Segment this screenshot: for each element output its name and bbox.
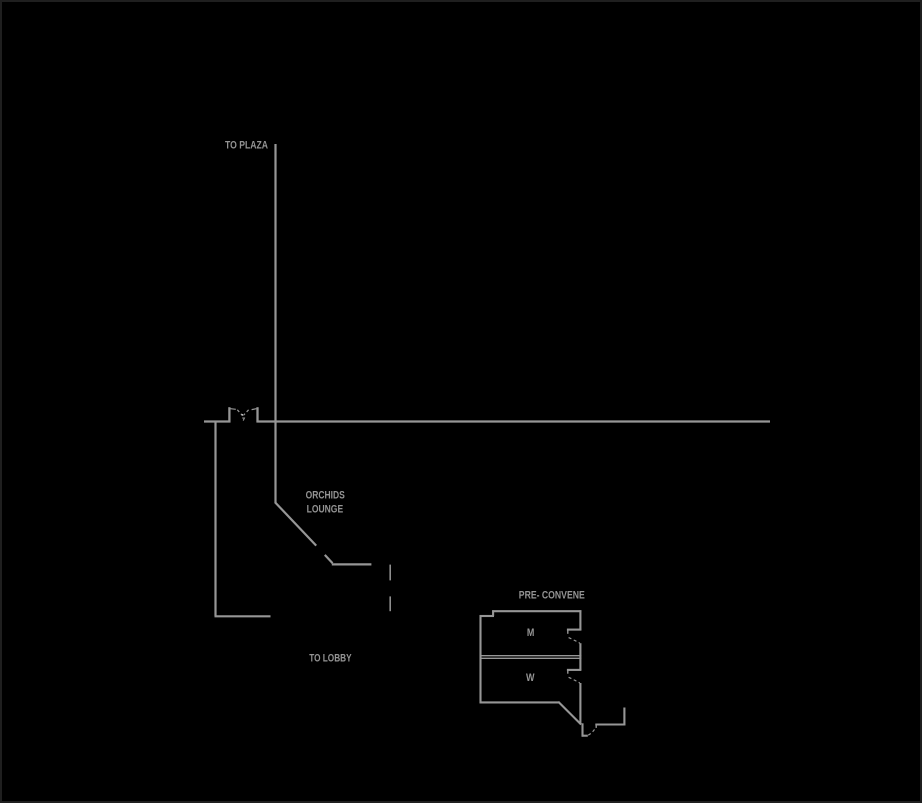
- svg-text:W: W: [526, 672, 535, 684]
- svg-text:ORCHIDS: ORCHIDS: [306, 490, 345, 502]
- svg-text:PRE- CONVENE: PRE- CONVENE: [519, 589, 585, 601]
- svg-text:M: M: [527, 627, 535, 639]
- svg-text:LOUNGE: LOUNGE: [307, 504, 344, 516]
- svg-text:TO PLAZA: TO PLAZA: [225, 140, 268, 152]
- svg-text:TO LOBBY: TO LOBBY: [309, 653, 352, 665]
